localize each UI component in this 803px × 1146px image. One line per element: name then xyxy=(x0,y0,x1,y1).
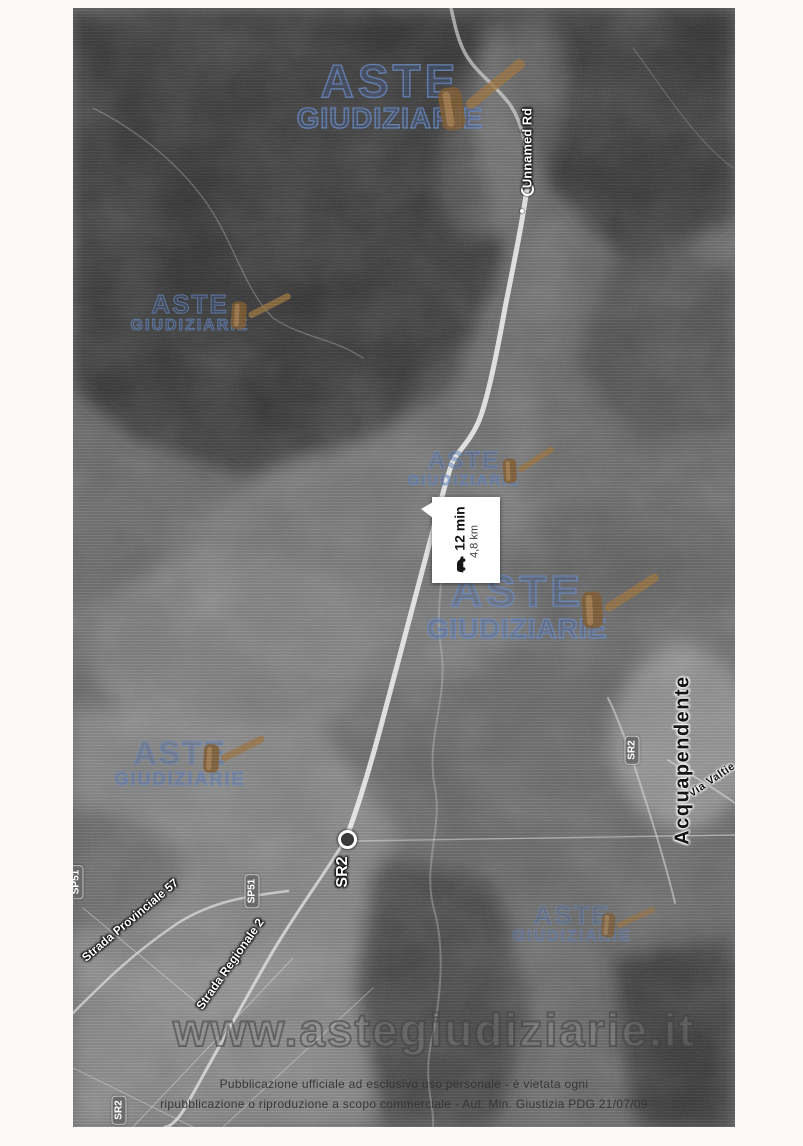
route-distance: 4,8 km xyxy=(469,497,481,583)
site-watermark: www.astegiudiziarie.it xyxy=(173,1003,696,1057)
footer-disclaimer-line2: ripubblicazione o riproduzione a scopo c… xyxy=(73,1097,735,1111)
origin-marker xyxy=(338,830,357,849)
route-summary-callout: 12 min 4,8 km xyxy=(432,497,500,583)
road-badge-sp51-mid: SP51 xyxy=(246,875,259,907)
car-icon xyxy=(453,555,466,574)
road-badge-sr2-shield: SR2 xyxy=(626,736,639,763)
footer-disclaimer-line1: Pubblicazione ufficiale ad esclusivo uso… xyxy=(73,1077,735,1091)
satellite-map: ASTE GIUDIZIARIE ASTE GIUDIZIARIE ASTE G… xyxy=(73,8,735,1127)
route-summary-content: 12 min 4,8 km xyxy=(452,497,481,583)
route-duration: 12 min xyxy=(452,506,468,550)
road-badge-sp51-left: SP51 xyxy=(73,866,83,898)
waypoint-dot xyxy=(520,209,524,213)
road-label-sr2-origin: SR2 xyxy=(334,856,352,887)
place-label-acquapendente: Acquapendente xyxy=(672,675,695,845)
road-label-unnamed-rd: Unnamed Rd xyxy=(520,108,535,188)
scanned-page: { "watermark": { "line1": "ASTE", "line2… xyxy=(0,0,803,1146)
